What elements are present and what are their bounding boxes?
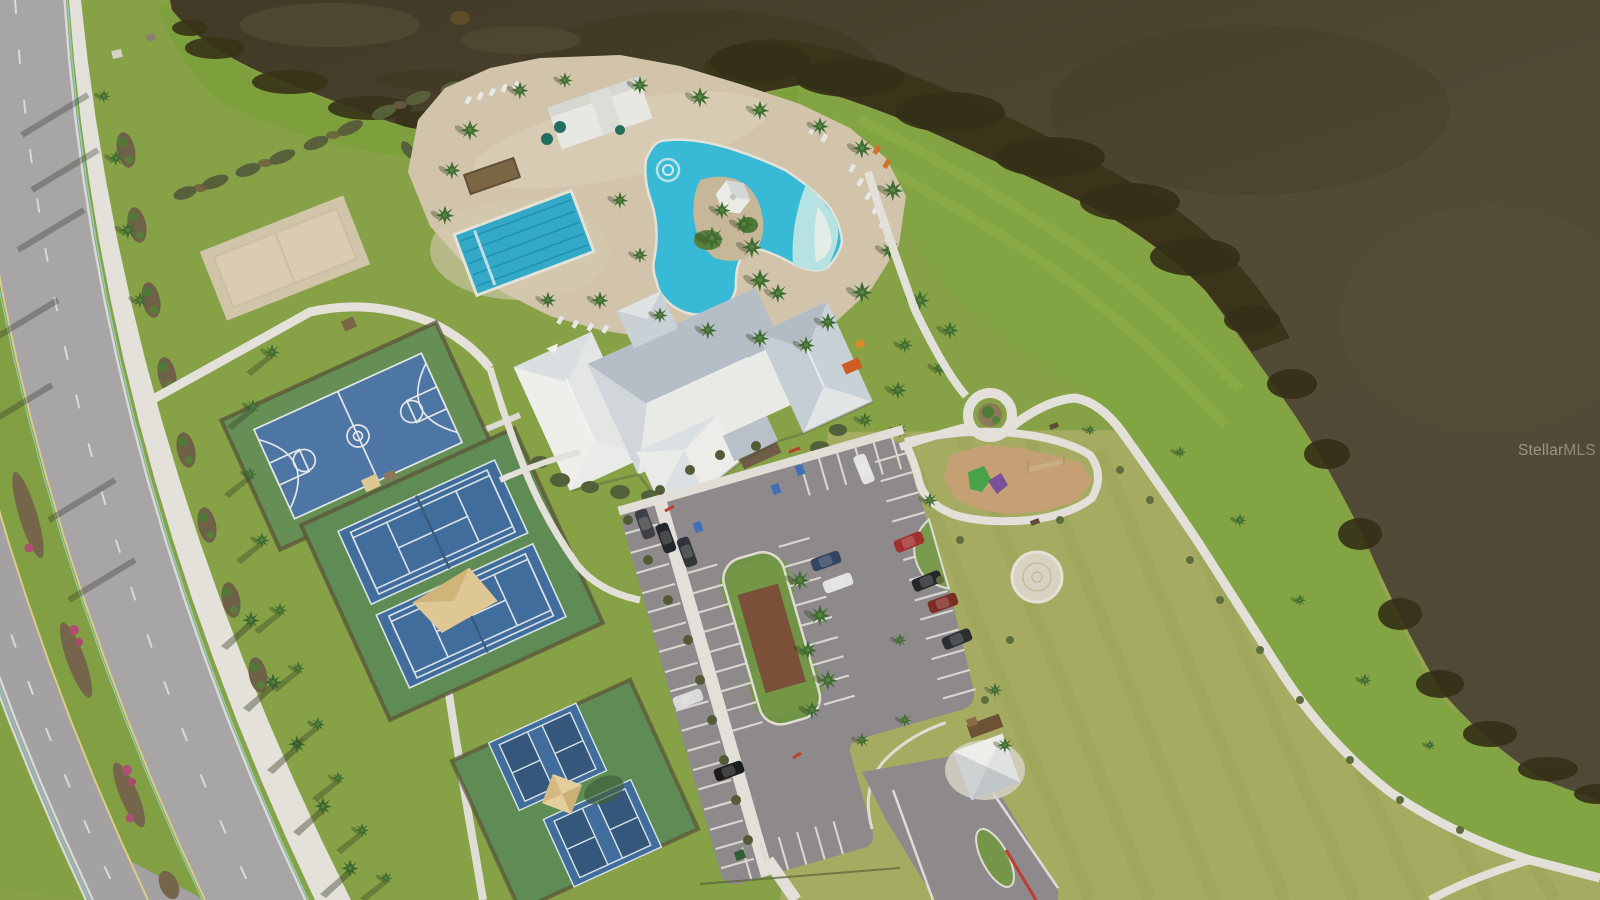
svg-text:StellarMLS: StellarMLS bbox=[1518, 442, 1596, 459]
